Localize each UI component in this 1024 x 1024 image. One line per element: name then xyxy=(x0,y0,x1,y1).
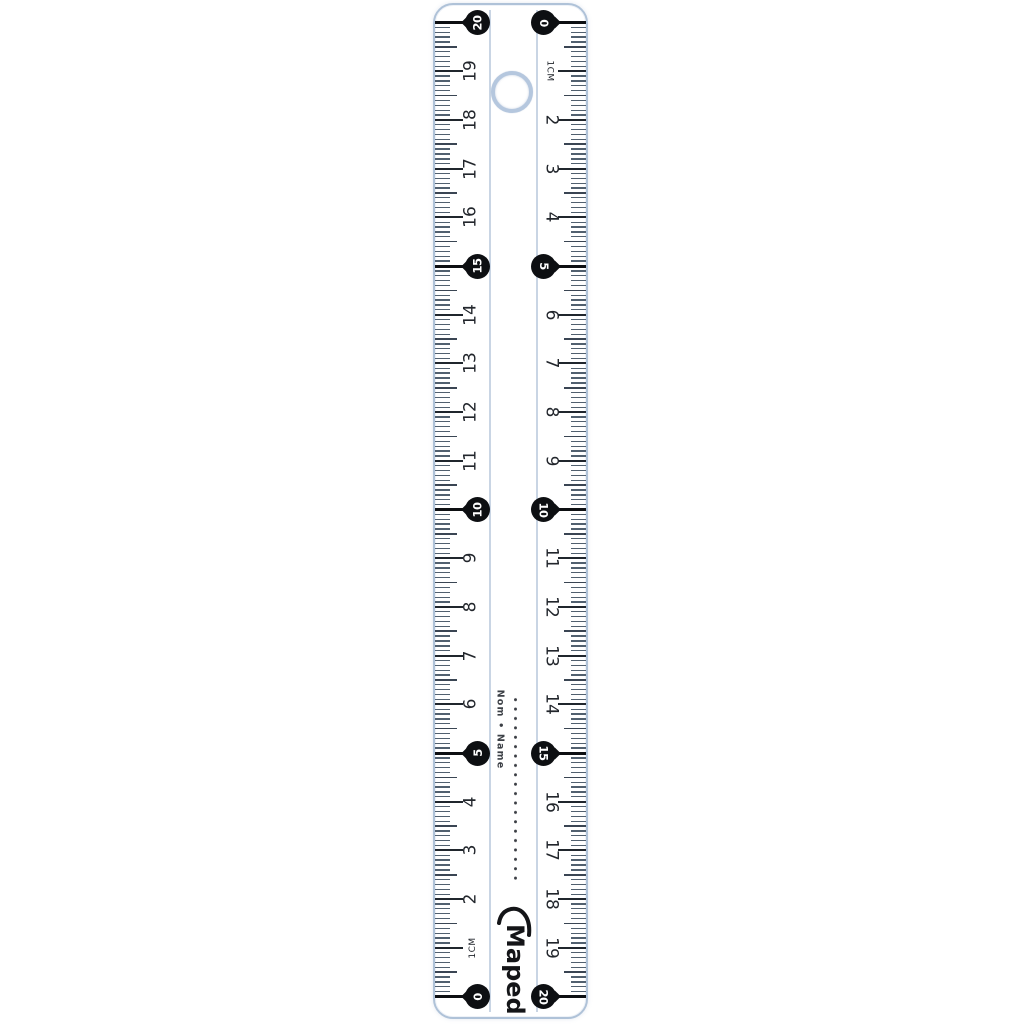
tick xyxy=(435,957,450,958)
tick xyxy=(571,523,586,524)
tick xyxy=(571,275,586,276)
tick xyxy=(435,674,450,675)
drop-number: 10 xyxy=(470,502,484,517)
tick xyxy=(435,494,450,495)
tick xyxy=(435,348,450,349)
tick xyxy=(571,285,586,286)
tick xyxy=(435,650,450,651)
tick xyxy=(435,382,450,383)
drop-number: 5 xyxy=(470,749,484,757)
cm-number: 2 xyxy=(462,894,479,905)
tick xyxy=(435,616,450,617)
tick xyxy=(571,173,586,174)
tick xyxy=(435,110,450,111)
tick xyxy=(571,139,586,140)
tick xyxy=(435,533,457,535)
hanging-hole xyxy=(491,71,533,113)
drop-marker-circle: 10 xyxy=(465,497,490,522)
tick xyxy=(435,397,450,398)
drop-marker-circle: 0 xyxy=(531,10,556,35)
cm-number: 4 xyxy=(542,212,559,223)
tick xyxy=(571,601,586,602)
tick xyxy=(435,733,450,734)
tick xyxy=(435,611,450,612)
tick xyxy=(435,743,450,744)
tick xyxy=(571,538,586,539)
tick xyxy=(435,372,450,373)
tick xyxy=(435,163,450,164)
tick xyxy=(435,582,457,584)
tick xyxy=(571,879,586,880)
tick xyxy=(435,840,450,841)
tick xyxy=(435,416,450,417)
tick xyxy=(435,489,450,490)
tick xyxy=(571,650,586,651)
tick xyxy=(571,782,586,783)
tick xyxy=(435,187,450,188)
tick xyxy=(564,630,586,632)
tick xyxy=(435,679,457,681)
tick xyxy=(571,811,586,812)
tick xyxy=(571,270,586,271)
tick xyxy=(558,70,586,72)
tick xyxy=(435,835,450,836)
cm-number: 14 xyxy=(542,693,559,715)
tick xyxy=(571,791,586,792)
drop-number: 20 xyxy=(470,15,484,30)
tick xyxy=(435,70,463,72)
tick xyxy=(435,587,450,588)
tick xyxy=(435,514,450,515)
tick xyxy=(571,869,586,870)
tick xyxy=(435,358,450,359)
tick xyxy=(571,304,586,305)
tick xyxy=(571,32,586,33)
tick xyxy=(435,499,450,500)
tick xyxy=(435,947,463,949)
tick xyxy=(435,168,463,170)
tick xyxy=(435,504,450,505)
tick xyxy=(571,372,586,373)
tick xyxy=(435,806,450,807)
tick xyxy=(571,246,586,247)
tick xyxy=(435,762,450,763)
tick xyxy=(564,192,586,194)
tick xyxy=(435,757,450,758)
tick xyxy=(571,528,586,529)
tick xyxy=(435,864,450,865)
cm-number: 6 xyxy=(462,699,479,710)
tick xyxy=(571,942,586,943)
tick xyxy=(435,825,457,827)
tick xyxy=(571,733,586,734)
tick xyxy=(435,143,457,145)
tick xyxy=(571,674,586,675)
tick xyxy=(435,329,450,330)
tick xyxy=(435,635,450,636)
tick xyxy=(435,937,450,938)
tick xyxy=(571,762,586,763)
tick xyxy=(571,105,586,106)
tick xyxy=(564,971,586,973)
tick xyxy=(571,183,586,184)
cm-number: 13 xyxy=(542,645,559,667)
tick xyxy=(435,606,463,608)
tick xyxy=(435,377,450,378)
tick xyxy=(435,450,450,451)
tick xyxy=(435,884,450,885)
cm-number: 18 xyxy=(462,109,479,131)
tick xyxy=(435,368,450,369)
tick xyxy=(435,192,457,194)
tick xyxy=(435,849,463,851)
tick xyxy=(435,548,450,549)
cm-number: 9 xyxy=(542,455,559,466)
tick xyxy=(435,134,450,135)
tick xyxy=(435,251,450,252)
tick xyxy=(435,689,450,690)
tick xyxy=(435,845,450,846)
tick xyxy=(571,329,586,330)
tick xyxy=(571,621,586,622)
tick xyxy=(435,299,450,300)
tick xyxy=(571,772,586,773)
tick xyxy=(435,923,457,925)
tick xyxy=(435,407,450,408)
tick xyxy=(571,577,586,578)
unit-label: 1cm xyxy=(544,61,557,82)
tick xyxy=(435,543,450,544)
tick xyxy=(571,251,586,252)
tick xyxy=(571,231,586,232)
tick xyxy=(571,952,586,953)
tick xyxy=(435,553,450,554)
tick xyxy=(435,967,450,968)
tick xyxy=(571,640,586,641)
tick xyxy=(571,845,586,846)
tick xyxy=(571,295,586,296)
tick xyxy=(571,913,586,914)
tick xyxy=(435,859,450,860)
tick xyxy=(571,163,586,164)
drop-marker-circle: 20 xyxy=(531,984,556,1009)
tick xyxy=(571,767,586,768)
tick xyxy=(435,747,450,748)
tick xyxy=(571,358,586,359)
tick xyxy=(435,207,450,208)
tick xyxy=(435,942,450,943)
tick xyxy=(435,290,457,292)
tick xyxy=(571,796,586,797)
tick xyxy=(435,256,450,257)
tick xyxy=(435,709,450,710)
tick xyxy=(571,830,586,831)
tick xyxy=(571,494,586,495)
tick xyxy=(435,557,463,559)
tick xyxy=(435,436,457,438)
tick xyxy=(571,51,586,52)
tick xyxy=(571,348,586,349)
tick xyxy=(435,874,457,876)
tick xyxy=(571,786,586,787)
tick xyxy=(435,684,450,685)
tick xyxy=(435,918,450,919)
tick xyxy=(435,202,450,203)
tick xyxy=(571,747,586,748)
tick xyxy=(435,976,450,977)
tick xyxy=(571,572,586,573)
tick xyxy=(571,353,586,354)
tick xyxy=(435,27,450,28)
cm-number: 3 xyxy=(542,163,559,174)
tick xyxy=(571,207,586,208)
cm-number: 12 xyxy=(542,596,559,618)
tick xyxy=(435,470,450,471)
tick xyxy=(435,46,457,48)
tick xyxy=(571,368,586,369)
cm-number: 12 xyxy=(462,401,479,423)
tick xyxy=(571,635,586,636)
tick xyxy=(435,260,450,261)
tick xyxy=(571,699,586,700)
tick xyxy=(558,314,586,316)
tick xyxy=(435,197,450,198)
tick xyxy=(571,738,586,739)
tick xyxy=(571,85,586,86)
tick xyxy=(435,991,450,992)
tick xyxy=(435,971,457,973)
drop-number: 15 xyxy=(470,258,484,273)
tick xyxy=(435,446,450,447)
tick xyxy=(571,840,586,841)
tick xyxy=(571,684,586,685)
tick xyxy=(435,95,457,97)
tick xyxy=(571,957,586,958)
tick xyxy=(571,587,586,588)
tick xyxy=(571,855,586,856)
tick xyxy=(435,986,450,987)
tick xyxy=(571,222,586,223)
tick xyxy=(571,967,586,968)
tick xyxy=(435,353,450,354)
drop-marker-circle: 5 xyxy=(531,254,556,279)
cm-number: 17 xyxy=(542,840,559,862)
tick xyxy=(571,645,586,646)
tick xyxy=(571,178,586,179)
tick xyxy=(571,723,586,724)
tick xyxy=(435,114,450,115)
tick xyxy=(571,718,586,719)
tick xyxy=(435,484,457,486)
tick xyxy=(571,158,586,159)
drop-number: 15 xyxy=(536,745,550,760)
tick xyxy=(435,879,450,880)
tick xyxy=(435,728,457,730)
tick xyxy=(435,713,450,714)
tick xyxy=(564,338,586,340)
tick xyxy=(435,855,450,856)
tick xyxy=(435,738,450,739)
tick xyxy=(571,821,586,822)
tick xyxy=(435,777,457,779)
tick xyxy=(435,90,450,91)
tick xyxy=(435,431,450,432)
tick xyxy=(435,660,450,661)
tick xyxy=(571,61,586,62)
tick xyxy=(435,66,450,67)
tick xyxy=(435,562,450,563)
tick xyxy=(435,903,450,904)
tick xyxy=(435,791,450,792)
tick xyxy=(571,280,586,281)
tick xyxy=(435,100,450,101)
tick xyxy=(435,767,450,768)
tick xyxy=(571,402,586,403)
tick xyxy=(571,299,586,300)
tick xyxy=(435,387,457,389)
tick xyxy=(435,173,450,174)
tick xyxy=(571,757,586,758)
tick xyxy=(435,402,450,403)
tick xyxy=(571,324,586,325)
tick xyxy=(571,397,586,398)
drop-marker-circle: 15 xyxy=(465,254,490,279)
tick xyxy=(571,519,586,520)
tick xyxy=(435,56,450,57)
tick xyxy=(558,362,586,364)
tick xyxy=(435,577,450,578)
tick xyxy=(558,460,586,462)
tick xyxy=(571,597,586,598)
cm-number: 8 xyxy=(542,407,559,418)
tick xyxy=(435,304,450,305)
tick xyxy=(435,811,450,812)
tick xyxy=(435,655,463,657)
tick xyxy=(571,689,586,690)
tick xyxy=(564,679,586,681)
tick xyxy=(435,630,457,632)
tick xyxy=(435,889,450,890)
tick xyxy=(435,426,450,427)
tick xyxy=(435,51,450,52)
tick xyxy=(435,362,463,364)
tick xyxy=(435,723,450,724)
tick xyxy=(571,514,586,515)
unit-label: 1cm xyxy=(464,937,477,958)
tick xyxy=(435,626,450,627)
tick xyxy=(435,816,450,817)
tick xyxy=(435,898,463,900)
tick xyxy=(571,153,586,154)
name-label-text: Nom • Name xyxy=(494,690,505,770)
tick xyxy=(435,908,450,909)
tick xyxy=(435,480,450,481)
tick xyxy=(435,343,450,344)
tick xyxy=(571,962,586,963)
tick xyxy=(564,241,586,243)
tick xyxy=(435,592,450,593)
tick xyxy=(571,110,586,111)
tick xyxy=(564,923,586,925)
tick xyxy=(435,782,450,783)
ruler: 234678911121314161718191cm05101520 23467… xyxy=(433,3,588,1019)
tick xyxy=(435,640,450,641)
tick xyxy=(435,572,450,573)
tick xyxy=(435,275,450,276)
tick xyxy=(435,41,450,42)
tick xyxy=(435,411,463,413)
tick xyxy=(571,611,586,612)
tick xyxy=(435,441,450,442)
tick xyxy=(571,903,586,904)
tick xyxy=(571,835,586,836)
tick xyxy=(435,212,450,213)
tick xyxy=(571,480,586,481)
tick xyxy=(435,295,450,296)
drop-number: 10 xyxy=(536,502,550,517)
tick xyxy=(435,334,450,335)
tick xyxy=(564,436,586,438)
tick xyxy=(435,119,463,121)
tick xyxy=(435,309,450,310)
tick xyxy=(571,36,586,37)
tick xyxy=(571,616,586,617)
tick xyxy=(558,168,586,170)
tick xyxy=(435,601,450,602)
tick xyxy=(435,597,450,598)
tick xyxy=(571,976,586,977)
tick xyxy=(571,986,586,987)
tick xyxy=(435,913,450,914)
tick xyxy=(435,928,450,929)
tick xyxy=(571,489,586,490)
tick xyxy=(435,183,450,184)
tick xyxy=(571,382,586,383)
tick xyxy=(571,27,586,28)
tick xyxy=(558,557,586,559)
tick xyxy=(435,236,450,237)
tick xyxy=(571,928,586,929)
tick xyxy=(435,421,450,422)
tick xyxy=(571,80,586,81)
tick xyxy=(435,129,450,130)
tick xyxy=(571,499,586,500)
tick xyxy=(435,241,457,243)
tick xyxy=(435,80,450,81)
cm-number: 2 xyxy=(542,114,559,125)
tick xyxy=(558,119,586,121)
tick xyxy=(435,124,450,125)
tick xyxy=(435,178,450,179)
cm-number: 8 xyxy=(462,601,479,612)
tick xyxy=(564,582,586,584)
tick xyxy=(571,465,586,466)
cm-number: 19 xyxy=(462,60,479,82)
cm-number: 16 xyxy=(462,206,479,228)
tick xyxy=(435,718,450,719)
tick xyxy=(571,475,586,476)
tick xyxy=(571,660,586,661)
drop-number: 0 xyxy=(536,19,550,27)
tick xyxy=(435,338,457,340)
tick xyxy=(571,421,586,422)
tick xyxy=(571,343,586,344)
cm-number: 9 xyxy=(462,553,479,564)
tick xyxy=(435,226,450,227)
tick xyxy=(564,95,586,97)
tick xyxy=(558,411,586,413)
tick xyxy=(435,222,450,223)
